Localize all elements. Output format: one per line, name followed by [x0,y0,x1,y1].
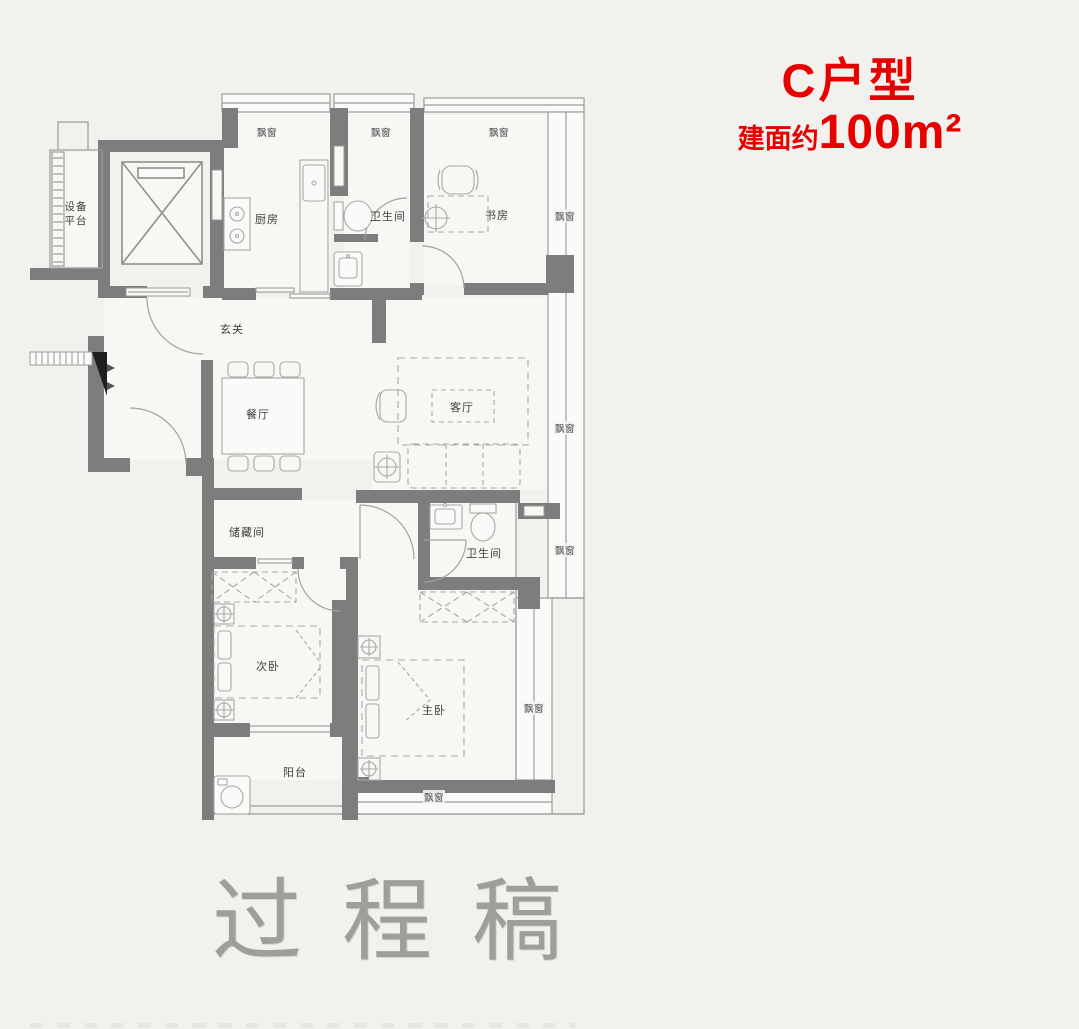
room-label-balcony: 阳台 [283,764,307,780]
room-label-study: 书房 [485,207,509,223]
room-label-master-bedroom: 主卧 [422,702,446,718]
unit-area: 建面约100m² [690,109,1010,157]
balcony-furniture [214,776,250,814]
room-label-dining: 餐厅 [246,406,270,422]
bay-window-label-bath-top: 飘窗 [370,125,392,139]
elevator [122,162,202,292]
bay-window-label-master-bottom: 飘窗 [423,790,445,804]
bottom-edge-marks [30,1023,575,1028]
bay-window-label-living-right: 飘窗 [554,421,576,435]
room-label-second-bedroom: 次卧 [256,658,280,674]
room-label-equipment-platform: 设备平台 [63,200,89,228]
area-value: 100m² [819,106,963,159]
unit-name: C户型 [690,56,1010,105]
room-label-kitchen: 厨房 [255,211,279,227]
room-label-storage: 储藏间 [229,524,265,540]
room-label-bathroom-mid: 卫生间 [466,545,502,561]
title-block: C户型 建面约100m² [690,56,1010,157]
room-label-bathroom-top: 卫生间 [370,208,406,224]
room-label-entry: 玄关 [220,321,244,337]
watermark-text: 过程稿 [212,876,602,971]
bay-window-label-kitchen-top: 飘窗 [256,125,278,139]
bay-window-label-study-right: 飘窗 [554,209,576,223]
room-label-living: 客厅 [450,399,474,415]
bay-window-label-study-top: 飘窗 [488,125,510,139]
bay-window-label-bath-right: 飘窗 [554,543,576,557]
floorplan-canvas: 设备平台 厨房 卫生间 书房 玄关 餐厅 客厅 储藏间 卫生间 次卧 主卧 阳台… [0,0,1079,1029]
bay-window-label-master-right: 飘窗 [523,701,545,715]
area-prefix: 建面约 [738,124,819,154]
